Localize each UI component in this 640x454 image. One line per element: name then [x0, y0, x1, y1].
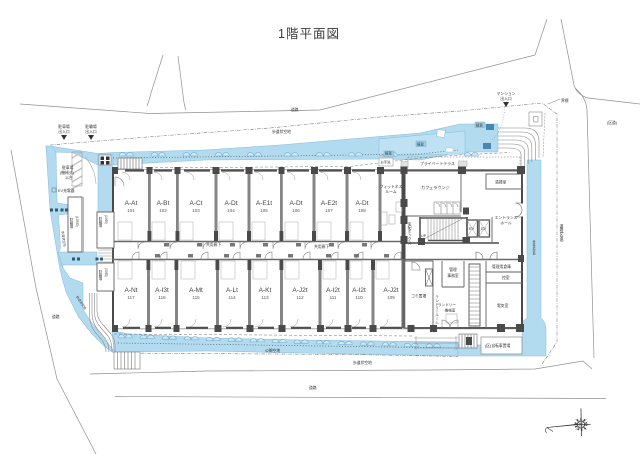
svg-text:駐車場: 駐車場 — [62, 165, 74, 170]
svg-text:清掃室: 清掃室 — [495, 180, 507, 185]
svg-text:駐輪場: 駐輪場 — [98, 269, 102, 281]
svg-text:歩道状空地: 歩道状空地 — [272, 129, 291, 134]
svg-text:A-Nt: A-Nt — [125, 287, 138, 294]
svg-text:113: 113 — [261, 295, 269, 300]
svg-text:共用廊下: 共用廊下 — [206, 242, 221, 247]
svg-text:ホール: ホール — [500, 221, 512, 226]
svg-text:駐輪場: 駐輪場 — [85, 124, 97, 129]
svg-text:管理用倉庫: 管理用倉庫 — [492, 264, 511, 269]
svg-text:お手洗: お手洗 — [381, 160, 392, 165]
svg-text:104: 104 — [227, 208, 235, 213]
svg-text:112: 112 — [296, 295, 304, 300]
svg-text:A-E2t: A-E2t — [321, 200, 337, 207]
svg-text:A-Dt: A-Dt — [290, 200, 303, 207]
svg-text:A-Dt: A-Dt — [356, 200, 369, 207]
svg-text:カフェラウンジ: カフェラウンジ — [421, 184, 450, 190]
svg-text:A-Kt: A-Kt — [259, 287, 272, 294]
svg-text:(機械式): (機械式) — [60, 170, 75, 175]
svg-text:植栽: 植栽 — [385, 151, 392, 156]
svg-text:117: 117 — [127, 295, 135, 300]
svg-text:歩道状空地: 歩道状空地 — [353, 360, 372, 365]
svg-text:A-J2t: A-J2t — [292, 287, 307, 294]
svg-text:控室: 控室 — [502, 275, 510, 280]
svg-text:植栽: 植栽 — [476, 123, 483, 128]
svg-text:(区)自転車置場: (区)自転車置場 — [485, 343, 511, 348]
svg-text:電気室: 電気室 — [497, 303, 509, 308]
svg-text:出入口: 出入口 — [85, 129, 97, 134]
svg-text:駐輪場: 駐輪場 — [69, 217, 73, 229]
svg-text:道路: 道路 — [291, 107, 299, 112]
svg-text:A-J2t: A-J2t — [383, 287, 398, 294]
svg-text:107: 107 — [325, 208, 333, 213]
svg-text:プライベートテラス: プライベートテラス — [420, 161, 455, 166]
svg-text:ゴミ置場: ゴミ置場 — [411, 294, 426, 299]
svg-text:A-Dt: A-Dt — [225, 200, 238, 207]
svg-text:102: 102 — [159, 208, 167, 213]
svg-text:A-I2t: A-I2t — [326, 287, 340, 294]
svg-text:フィットネス: フィットネス — [380, 184, 403, 189]
svg-text:111: 111 — [330, 295, 337, 300]
svg-text:(105台): (105台) — [75, 216, 79, 227]
svg-text:ランドリー: ランドリー — [438, 302, 456, 307]
svg-text:管理: 管理 — [449, 267, 457, 272]
svg-text:EV: EV — [469, 227, 475, 231]
svg-text:EV充電器: EV充電器 — [58, 188, 75, 193]
svg-text:103: 103 — [192, 208, 200, 213]
svg-text:108: 108 — [358, 208, 366, 213]
svg-text:界標: 界標 — [561, 98, 569, 103]
svg-text:A-Ct: A-Ct — [190, 200, 203, 207]
svg-text:(区道): (区道) — [607, 120, 618, 125]
svg-text:EV: EV — [481, 227, 487, 231]
svg-text:出入口: 出入口 — [58, 129, 70, 134]
svg-text:(30台): (30台) — [104, 268, 108, 277]
svg-text:A-Lt: A-Lt — [226, 287, 238, 294]
svg-text:駐車場: 駐車場 — [58, 124, 70, 129]
svg-text:A-Mt: A-Mt — [189, 287, 203, 294]
svg-text:公開空地: 公開空地 — [265, 348, 280, 353]
svg-text:A-I2t: A-I2t — [352, 287, 366, 294]
svg-text:115: 115 — [192, 295, 200, 300]
svg-text:110: 110 — [355, 295, 363, 300]
svg-text:道路(区道): 道路(区道) — [559, 223, 564, 242]
svg-text:駐輪場: 駐輪場 — [98, 216, 102, 228]
svg-text:宅配ボックス: 宅配ボックス — [407, 221, 412, 245]
svg-text:ランドリールーム: ランドリールーム — [434, 294, 439, 324]
svg-text:ルーム: ルーム — [385, 189, 396, 194]
svg-text:114: 114 — [228, 295, 236, 300]
svg-text:歩道状空地: 歩道状空地 — [532, 239, 536, 256]
svg-text:105: 105 — [260, 208, 268, 213]
svg-text:事務室: 事務室 — [447, 273, 459, 278]
svg-text:UP: UP — [421, 234, 427, 238]
svg-text:101: 101 — [127, 208, 135, 213]
svg-text:エントランス: エントランス — [495, 215, 518, 220]
svg-text:A-E1t: A-E1t — [256, 200, 272, 207]
svg-text:106: 106 — [292, 208, 300, 213]
svg-text:116: 116 — [158, 295, 166, 300]
svg-text:(20台): (20台) — [104, 215, 108, 224]
svg-text:109: 109 — [387, 295, 395, 300]
svg-text:マンション: マンション — [497, 91, 516, 96]
svg-text:共用廊下: 共用廊下 — [314, 244, 329, 249]
svg-text:A-Bt: A-Bt — [157, 200, 170, 207]
svg-text:11台: 11台 — [65, 175, 73, 180]
svg-text:1階平面図: 1階平面図 — [278, 26, 340, 41]
svg-text:植栽: 植栽 — [417, 142, 424, 147]
svg-text:道路: 道路 — [52, 314, 60, 319]
svg-text:A-At: A-At — [125, 200, 138, 207]
svg-text:道路: 道路 — [309, 385, 317, 390]
svg-text:機械室: 機械室 — [445, 308, 456, 313]
svg-text:A-I3t: A-I3t — [155, 287, 169, 294]
svg-text:出入口: 出入口 — [500, 96, 512, 101]
